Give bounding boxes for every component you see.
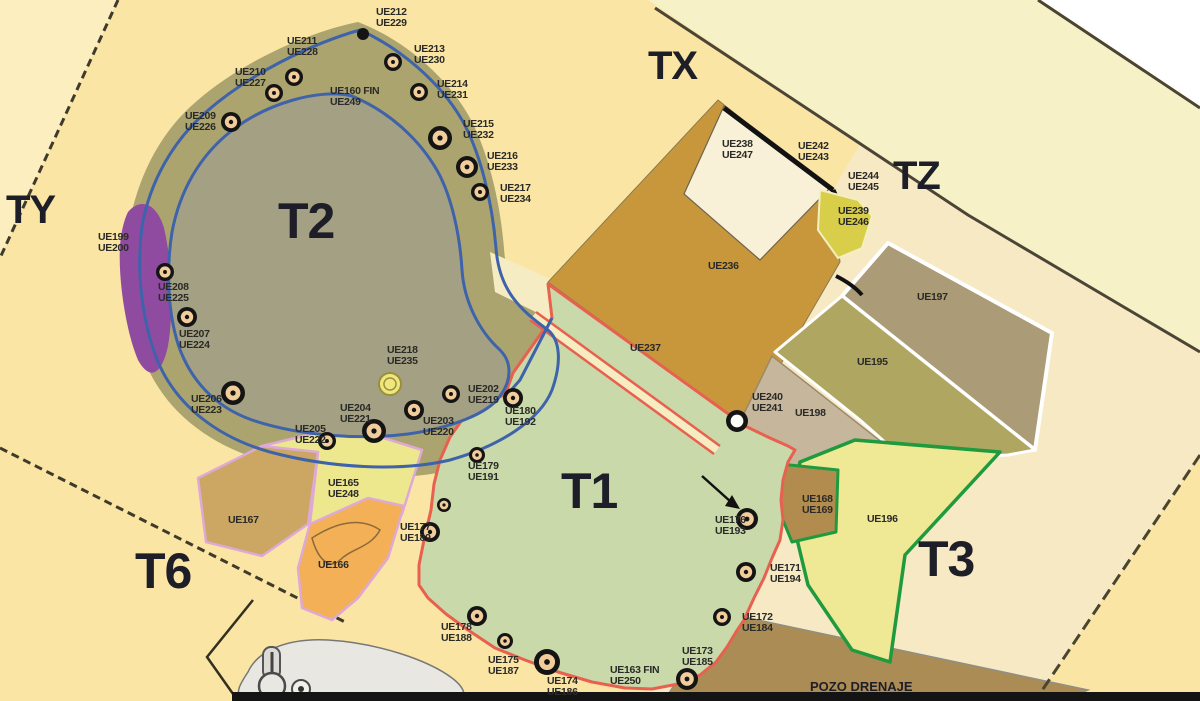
excavation-feature-icon [469, 447, 485, 463]
excavation-feature-icon [534, 649, 560, 675]
excavation-feature-icon [726, 410, 748, 432]
excavation-feature-icon [410, 83, 428, 101]
excavation-feature-icon [177, 307, 197, 327]
excavation-feature-icon [265, 84, 283, 102]
excavation-feature-icon [676, 668, 698, 690]
excavation-feature-icon [404, 400, 424, 420]
excavation-feature-icon [285, 68, 303, 86]
excavation-feature-icon [437, 498, 451, 512]
excavation-feature-icon [456, 156, 478, 178]
excavation-feature-icon [221, 381, 245, 405]
excavation-feature-icon [221, 112, 241, 132]
excavation-feature-icon [442, 385, 460, 403]
excavation-feature-icon [736, 562, 756, 582]
excavation-feature-icon [736, 508, 758, 530]
excavation-feature-icon [467, 606, 487, 626]
excavation-feature-icon [471, 183, 489, 201]
excavation-feature-icon [357, 28, 369, 40]
excavation-feature-icon [497, 633, 513, 649]
excavation-feature-icon [362, 419, 386, 443]
excavation-map-canvas [0, 0, 1200, 701]
excavation-feature-icon [420, 522, 440, 542]
excavation-feature-icon [379, 373, 401, 395]
excavation-feature-icon [713, 608, 731, 626]
site-map: UE212UE229UE211UE228UE210UE227UE209UE226… [0, 0, 1200, 701]
region-ue168 [778, 464, 838, 542]
excavation-feature-icon [428, 126, 452, 150]
excavation-feature-icon [318, 432, 336, 450]
excavation-feature-icon [503, 388, 523, 408]
map-bottom-border [232, 692, 1200, 701]
excavation-feature-icon [156, 263, 174, 281]
excavation-feature-icon [384, 53, 402, 71]
